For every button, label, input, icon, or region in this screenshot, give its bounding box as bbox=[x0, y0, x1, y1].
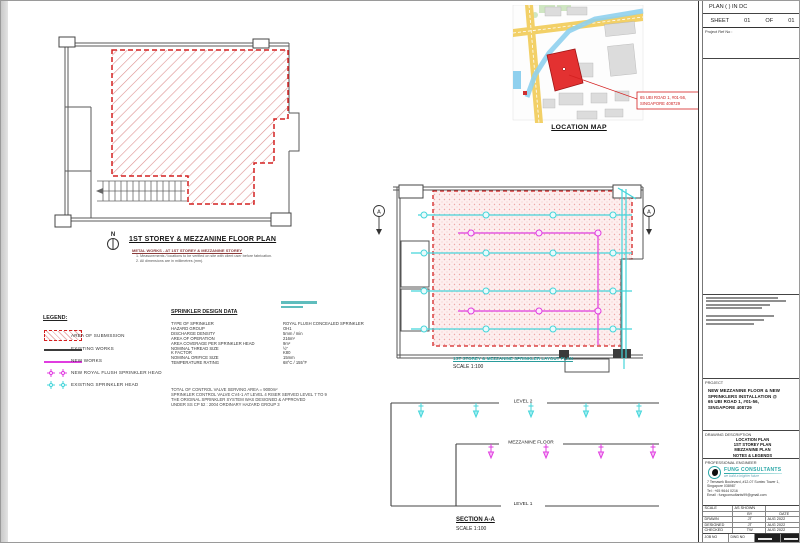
job-no-label: JOB NO bbox=[703, 534, 729, 543]
job-number-row: JOB NO DWG NO bbox=[703, 534, 800, 543]
svg-text:A: A bbox=[377, 210, 381, 216]
right-plan-scale: SCALE 1:100 bbox=[453, 364, 483, 370]
level-2-label: LEVEL 2 bbox=[514, 399, 533, 405]
legend: LEGEND: AREA OF SUBMISSION EXISTING WORK… bbox=[41, 313, 191, 397]
new-sprinklers-section bbox=[489, 444, 656, 458]
svg-text:A: A bbox=[647, 210, 651, 216]
right-plan-title: 1ST STOREY & MEZZANINE SPRINKLER LAYOUT … bbox=[453, 356, 573, 361]
amendments-box bbox=[703, 59, 800, 295]
callout-address-line1: 65 UBI ROAD 1, #01-56, bbox=[640, 95, 686, 100]
new-sprinkler-head-symbol bbox=[44, 367, 70, 379]
illegible-text-line bbox=[706, 319, 764, 321]
location-map-title: LOCATION MAP bbox=[521, 124, 637, 131]
north-arrow-icon: N bbox=[105, 230, 121, 254]
notes-box bbox=[703, 295, 800, 379]
left-plan-subtitle: METAL WORKS - AT 1ST STOREY & MEZZANINE … bbox=[132, 248, 242, 253]
dwg-no-label: DWG NO bbox=[729, 534, 755, 543]
existing-sprinklers-section bbox=[419, 403, 642, 417]
drawing-sheet: N 1ST STOREY & MEZZANINE FLOOR PLAN META… bbox=[0, 0, 800, 543]
left-plan-note-1: 1. Measurements / locations to be verifi… bbox=[136, 254, 272, 258]
first-storey-floor-plan-drawing bbox=[39, 29, 305, 239]
sprinkler-data-table: TYPE OF SPRINKLERROYAL FLUSH CONCEALED S… bbox=[171, 322, 371, 366]
illegible-text-line bbox=[706, 297, 778, 299]
sd-note-line: UNDER SS CP 52 : 2004 ORDINARY HAZARD GR… bbox=[171, 402, 381, 407]
consultant-tagline: we build a brighter future bbox=[724, 474, 782, 478]
plan-type-row: PLAN ( ) IN DC bbox=[703, 1, 800, 14]
consultant-logo-icon bbox=[708, 466, 721, 479]
sprinkler-data-notes: TOTAL OF CONTROL VALVE SERVING AREA = 90… bbox=[171, 387, 381, 407]
revision-cell bbox=[781, 534, 800, 543]
section-a-a-drawing: LEVEL 2 MEZZANINE FLOOR LEVEL 1 bbox=[381, 393, 661, 518]
sheet-label: SHEET bbox=[711, 18, 730, 24]
section-marker-right: A bbox=[644, 206, 655, 236]
mezzanine-line bbox=[456, 444, 659, 506]
sd-label: TEMPERATURE RATING bbox=[171, 361, 283, 366]
location-map: 65 UBI ROAD 1, #01-56, SINGAPORE 408729 bbox=[509, 5, 707, 123]
consultant-email: Email : fungconsultants99@gmail.com bbox=[703, 493, 800, 497]
project-header: PROJECT bbox=[703, 379, 800, 385]
sheet-total: 01 bbox=[788, 18, 794, 24]
plan-type-label: PLAN ( ) IN DC bbox=[703, 1, 800, 14]
legend-label: NEW ROYAL FLUSH SPRINKLER HEAD bbox=[71, 370, 162, 375]
description-line: NOTES & LEGENDS bbox=[703, 453, 800, 458]
project-ref-label: Project Ref No : bbox=[703, 28, 800, 34]
section-title: SECTION A-A bbox=[456, 517, 495, 523]
title-block: PLAN ( ) IN DC SHEET 01 OF 01 Project Re… bbox=[698, 1, 800, 543]
illegible-text-line bbox=[706, 315, 774, 317]
legend-title: LEGEND: bbox=[43, 315, 67, 321]
project-ref-box: Project Ref No : bbox=[703, 28, 800, 59]
mezzanine-submission-area bbox=[433, 191, 632, 346]
existing-sprinkler-head-symbol bbox=[44, 379, 70, 391]
legend-label: EXISTING WORKS bbox=[71, 346, 114, 351]
dwg-number-cell bbox=[755, 534, 781, 543]
svg-text:N: N bbox=[111, 232, 115, 238]
left-plan-note-2: 2. All dimensions are in millimetres (mm… bbox=[136, 259, 203, 263]
legend-label: EXISTING SPRINKLER HEAD bbox=[71, 382, 138, 387]
illegible-text-line bbox=[706, 307, 762, 309]
sprinkler-data-title: SPRINKLER DESIGN DATA bbox=[171, 309, 237, 315]
scan-edge bbox=[1, 1, 8, 543]
section-marker-left: A bbox=[374, 206, 385, 236]
illegible-text-line bbox=[706, 300, 786, 302]
legend-label: AREA OF SUBMISSION bbox=[71, 333, 125, 338]
left-plan-title: 1ST STOREY & MEZZANINE FLOOR PLAN bbox=[129, 236, 276, 243]
mezzanine-label: MEZZANINE FLOOR bbox=[508, 440, 554, 446]
illegible-text-line bbox=[706, 304, 770, 306]
pe-stamp bbox=[281, 301, 321, 310]
consultant-name: FUNG CONSULTANTS bbox=[724, 467, 782, 473]
sd-value: 68°C / 155°F bbox=[283, 361, 371, 366]
consultant-box: PROFESSIONAL ENGINEER FUNG CONSULTANTS w… bbox=[703, 459, 800, 506]
sprinkler-layout-plan-drawing: A A bbox=[363, 173, 663, 373]
signoff-table: SCALE AS SHOWN BY DATE DRAWN JT AUG 2022… bbox=[703, 506, 800, 534]
drawing-description-box: DRAWING DESCRIPTION LOCATION PLAN 1ST ST… bbox=[703, 431, 800, 459]
staircase bbox=[96, 181, 187, 201]
project-line: SINGAPORE 408729 bbox=[703, 405, 800, 411]
sheet-number: 01 bbox=[744, 18, 750, 24]
section-scale: SCALE 1:100 bbox=[456, 526, 486, 532]
callout-address-line2: SINGAPORE 408729 bbox=[640, 101, 681, 106]
engineer-header: PROFESSIONAL ENGINEER bbox=[703, 459, 800, 465]
project-box: PROJECT NEW MEZZANINE FLOOR & NEW SPRINK… bbox=[703, 379, 800, 431]
legend-label: NEW WORKS bbox=[71, 358, 102, 363]
illegible-text-line bbox=[706, 323, 754, 325]
sprinkler-design-data: SPRINKLER DESIGN DATA TYPE OF SPRINKLERR… bbox=[171, 307, 371, 417]
level-1-label: LEVEL 1 bbox=[514, 501, 533, 507]
sheet-number-row: SHEET 01 OF 01 bbox=[703, 14, 800, 28]
sheet-of-label: OF bbox=[765, 18, 773, 24]
